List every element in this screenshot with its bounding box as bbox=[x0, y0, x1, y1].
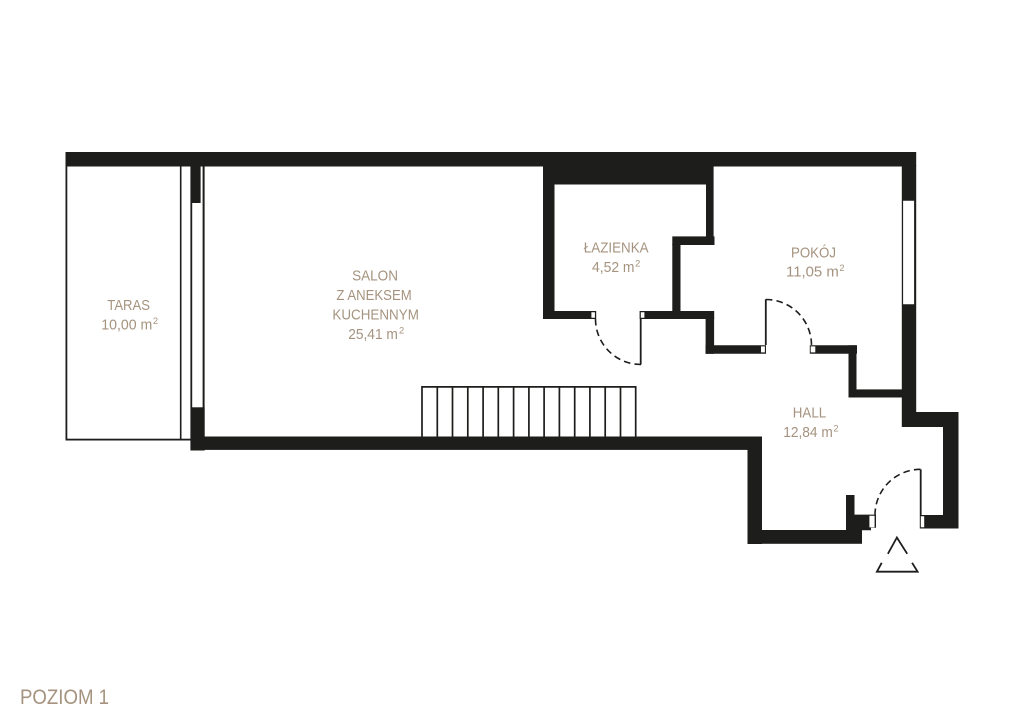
svg-text:2: 2 bbox=[635, 259, 640, 270]
svg-text:2: 2 bbox=[399, 326, 404, 337]
svg-text:25,41 m: 25,41 m bbox=[348, 326, 398, 343]
svg-text:SALON: SALON bbox=[352, 268, 398, 285]
svg-text:2: 2 bbox=[839, 263, 844, 274]
svg-text:4,52 m: 4,52 m bbox=[592, 259, 635, 276]
svg-text:10,00 m: 10,00 m bbox=[101, 316, 152, 333]
svg-text:ŁAZIENKA: ŁAZIENKA bbox=[584, 240, 649, 257]
svg-text:11,05 m: 11,05 m bbox=[786, 263, 839, 280]
svg-text:TARAS: TARAS bbox=[107, 297, 150, 314]
svg-text:Z ANEKSEM: Z ANEKSEM bbox=[336, 287, 411, 304]
svg-text:12,84 m: 12,84 m bbox=[783, 424, 833, 441]
svg-text:2: 2 bbox=[153, 316, 158, 327]
svg-text:2: 2 bbox=[833, 423, 838, 434]
svg-text:POKÓJ: POKÓJ bbox=[791, 244, 836, 261]
svg-text:KUCHENNYM: KUCHENNYM bbox=[332, 306, 419, 323]
svg-text:HALL: HALL bbox=[793, 404, 826, 421]
svg-text:POZIOM 1: POZIOM 1 bbox=[20, 684, 109, 709]
